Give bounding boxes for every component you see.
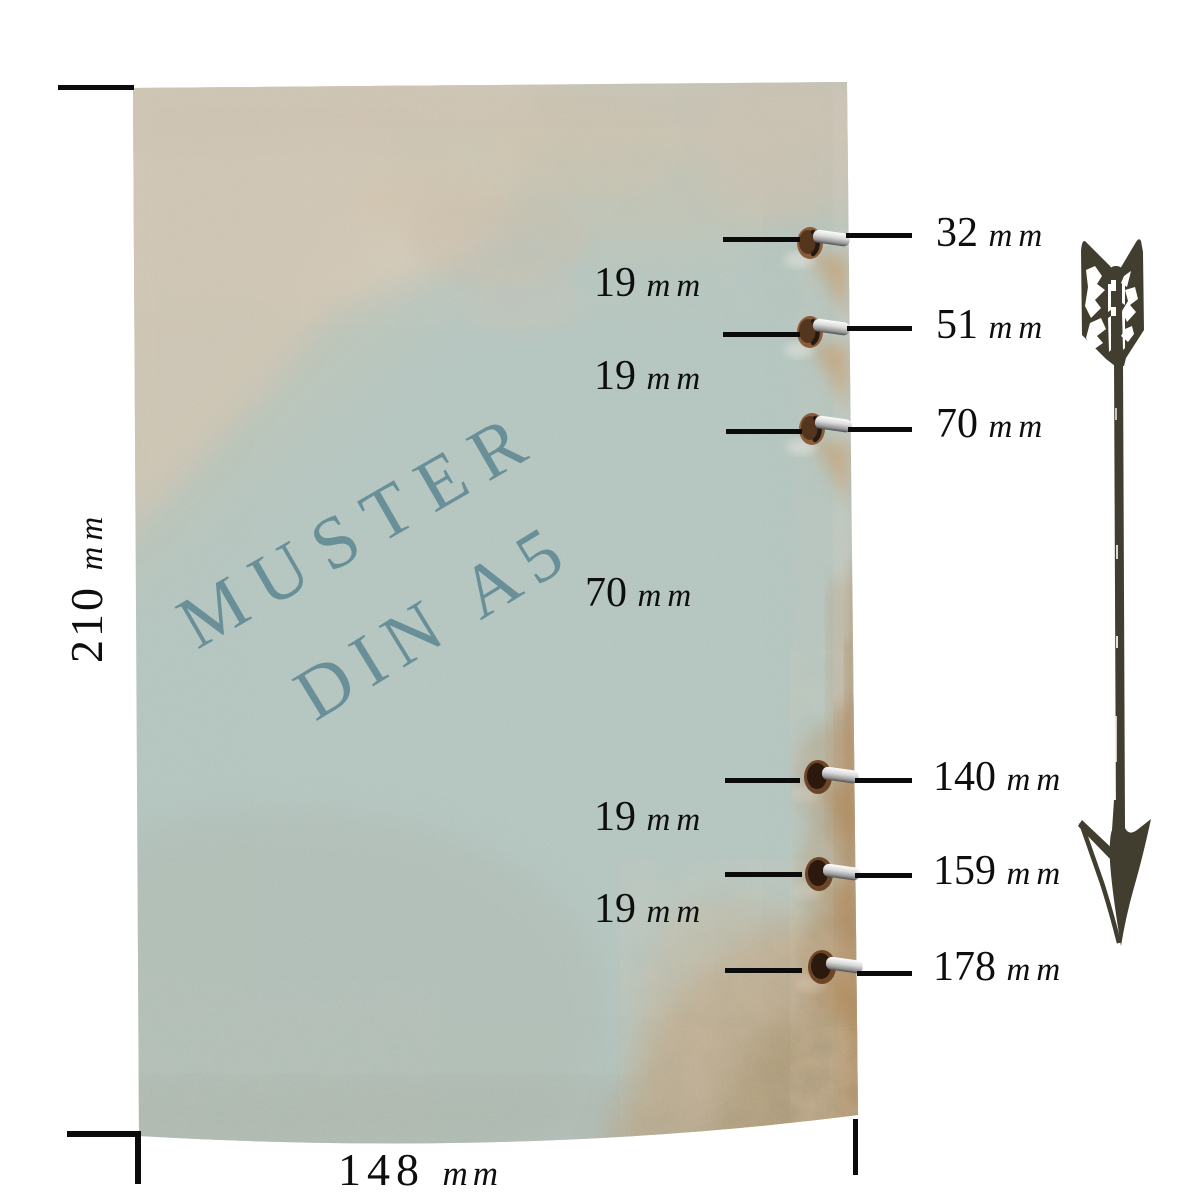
svg-text:178 mm: 178 mm [933,944,1066,990]
svg-text:159 mm: 159 mm [933,848,1066,894]
svg-text:70 mm: 70 mm [936,401,1048,447]
svg-text:148 mm: 148 mm [338,1144,503,1195]
svg-text:210 mm: 210 mm [61,511,112,663]
svg-text:51 mm: 51 mm [936,302,1048,348]
svg-text:32 mm: 32 mm [936,210,1048,256]
svg-text:140 mm: 140 mm [933,754,1066,800]
